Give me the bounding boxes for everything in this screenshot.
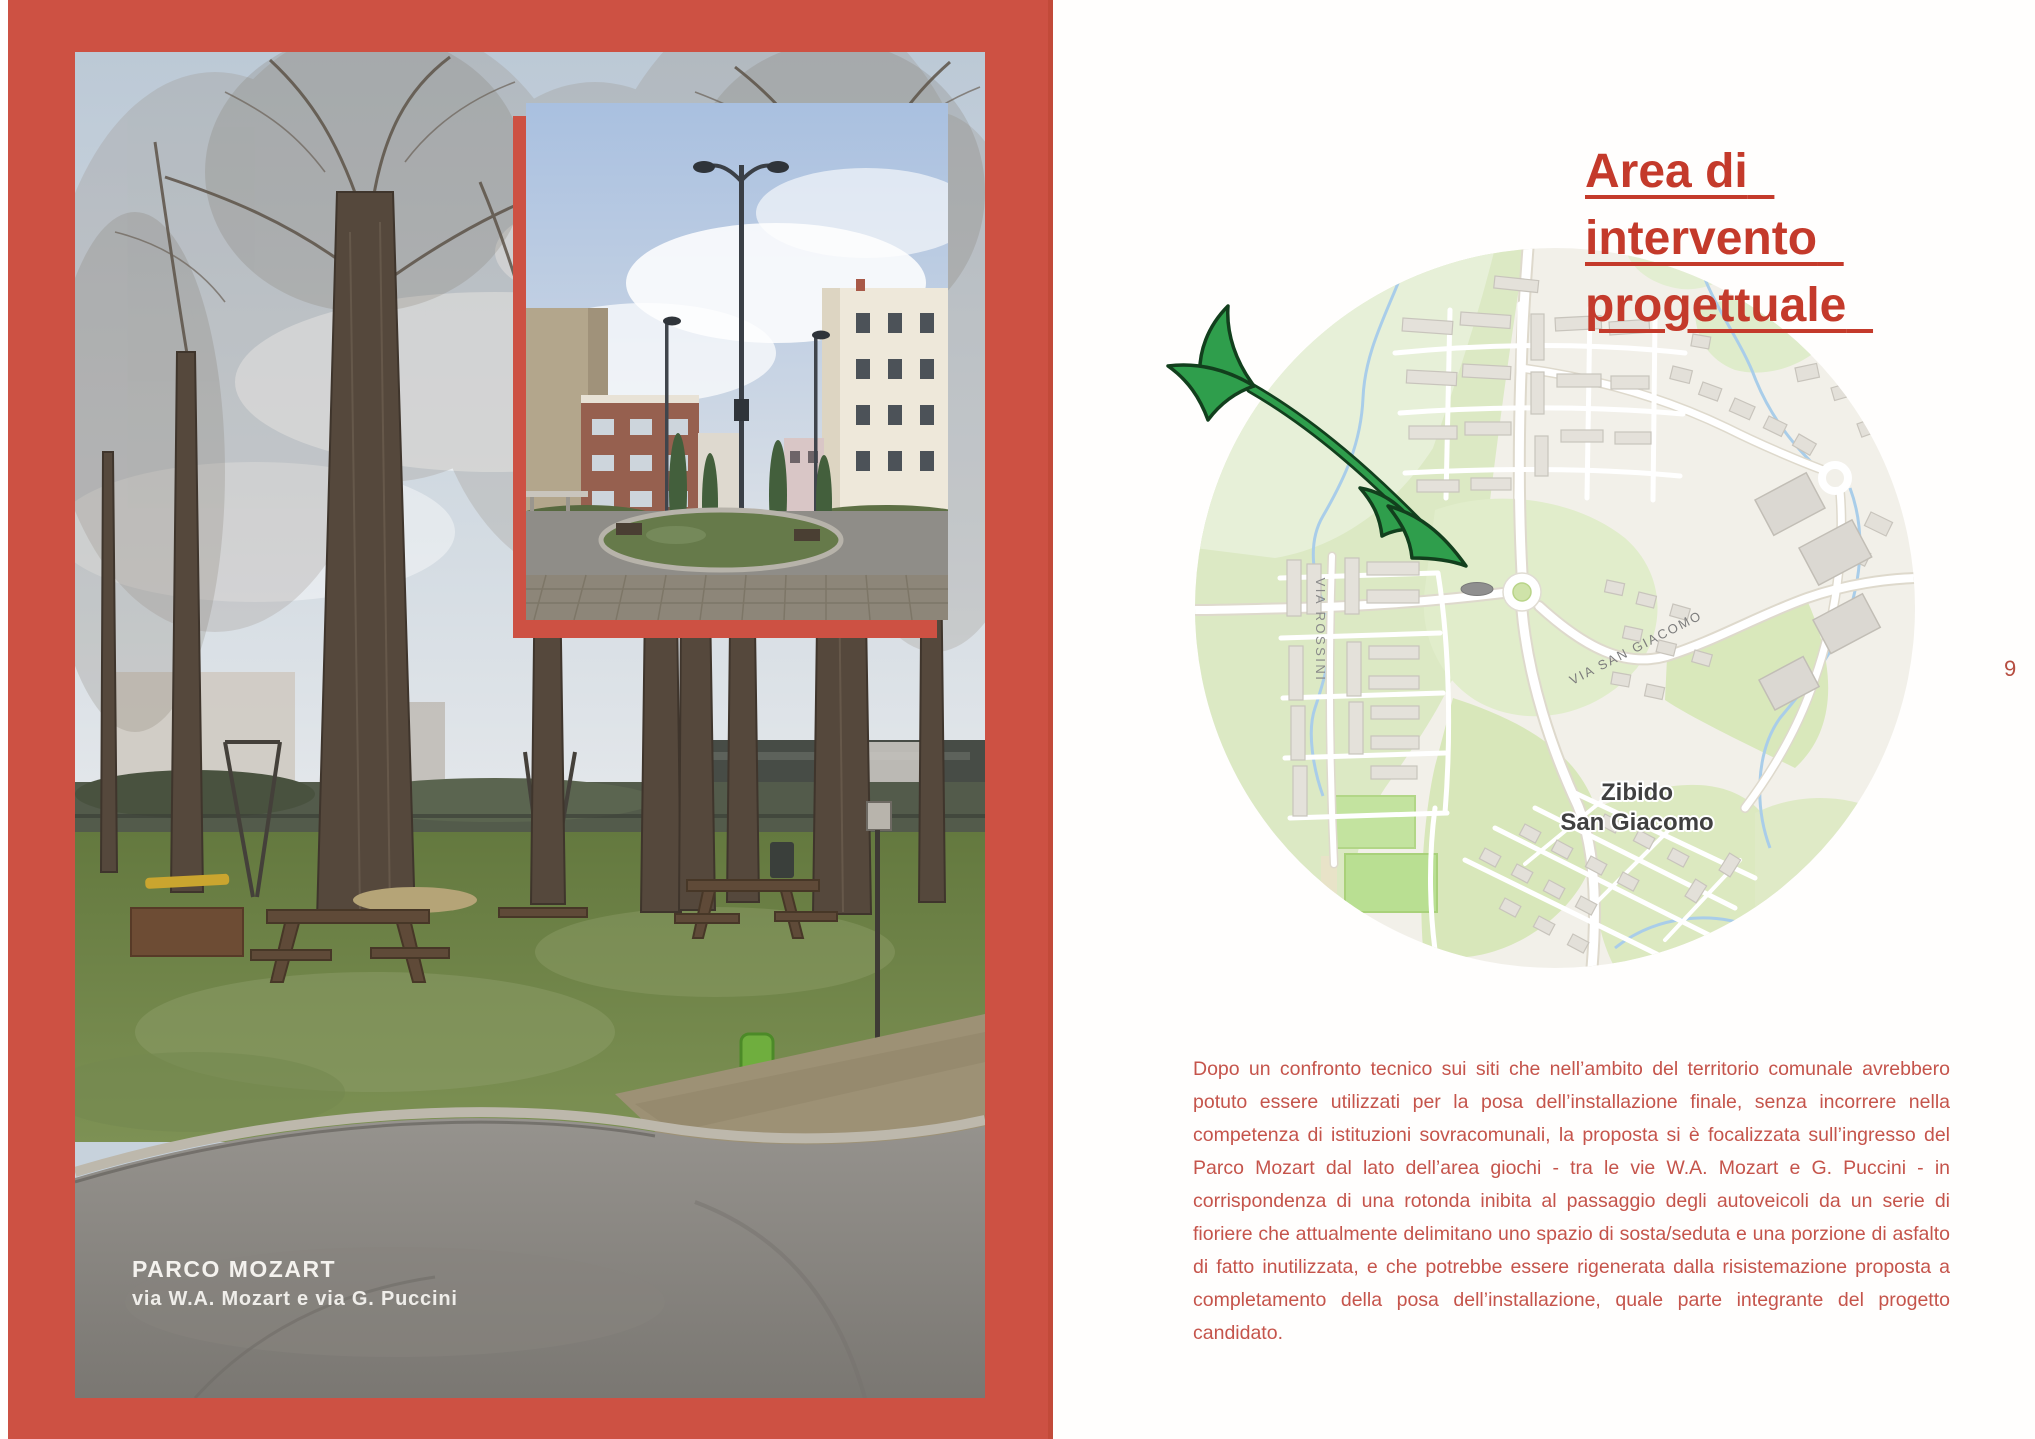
photo-caption: PARCO MOZART via W.A. Mozart e via G. Pu…: [132, 1254, 458, 1314]
section-title-line-3: progettuale: [1585, 272, 1873, 339]
roundabout-inset-photo: [526, 103, 948, 620]
photo-panel: PARCO MOZART via W.A. Mozart e via G. Pu…: [8, 0, 1053, 1439]
map-town-label-line1: Zibido: [1601, 779, 1673, 806]
section-title-line-2: intervento: [1585, 205, 1844, 272]
document-page: PARCO MOZART via W.A. Mozart e via G. Pu…: [0, 0, 2035, 1439]
street-label-rossini: VIA ROSSINI: [1313, 578, 1328, 683]
photo-caption-title: PARCO MOZART: [132, 1254, 458, 1284]
section-title-line-1: Area di: [1585, 138, 1774, 205]
map-town-label-line2: San Giacomo: [1560, 809, 1713, 836]
body-paragraph: Dopo un confronto tecnico sui siti che n…: [1193, 1053, 1950, 1350]
section-title: Area di intervento progettuale: [1585, 138, 2005, 339]
location-map: VIA ROSSINI VIA SAN GIACOMO Zibido San G…: [1195, 248, 1915, 968]
page-number: 9: [2004, 656, 2016, 682]
roundabout-photo-illustration: [526, 103, 948, 620]
photo-caption-subtitle: via W.A. Mozart e via G. Puccini: [132, 1284, 458, 1314]
